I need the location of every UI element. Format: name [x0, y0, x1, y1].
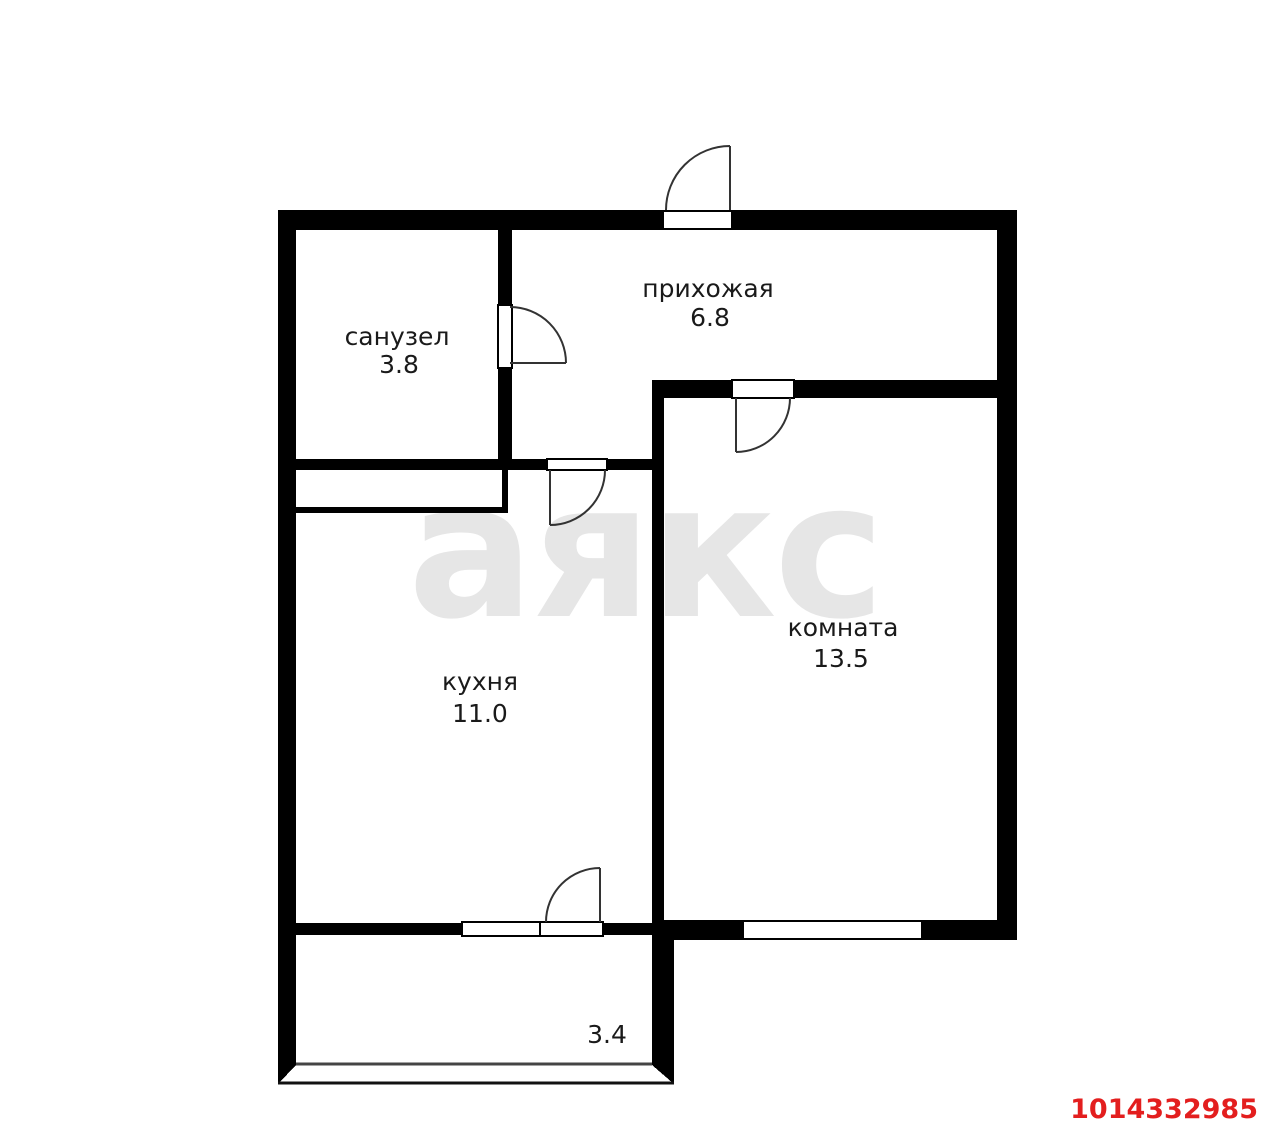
duct-outline-bottom	[296, 507, 508, 513]
listing-id: 1014332985	[1070, 1094, 1258, 1125]
wall-outer-left	[278, 210, 296, 1065]
wall-bathroom-kitchen-top	[296, 459, 664, 470]
duct-outline-right	[502, 470, 508, 513]
hallway-area-value: 6.8	[690, 303, 730, 332]
balcony-area-value: 3.4	[587, 1020, 627, 1049]
wall-kitchen-room	[652, 398, 664, 933]
room-window-opening	[743, 921, 922, 939]
kitchen-label: кухня	[442, 667, 518, 696]
kitchen-door-opening	[547, 459, 607, 470]
wall-hallway-room	[652, 380, 997, 398]
wall-outer-top	[278, 210, 1017, 230]
wall-outer-right	[997, 210, 1017, 940]
room-balcony: 3.4	[587, 1020, 627, 1049]
balcony-door-opening	[540, 922, 603, 936]
hallway-label: прихожая	[642, 274, 773, 303]
bathroom-door-opening	[498, 305, 512, 368]
floorplan-page: аякс	[0, 0, 1280, 1126]
kitchen-area-value: 11.0	[452, 699, 508, 728]
wall-balcony-right	[652, 935, 674, 1065]
bathroom-area-value: 3.8	[379, 350, 419, 379]
bathroom-label: санузел	[345, 322, 450, 351]
balcony-window-opening	[462, 922, 540, 936]
floorplan-drawing: аякс	[0, 0, 1280, 1126]
living-room-label: комната	[788, 613, 899, 642]
room-door-opening	[732, 380, 794, 398]
entrance-door-opening	[663, 211, 732, 229]
living-room-area-value: 13.5	[813, 644, 869, 673]
